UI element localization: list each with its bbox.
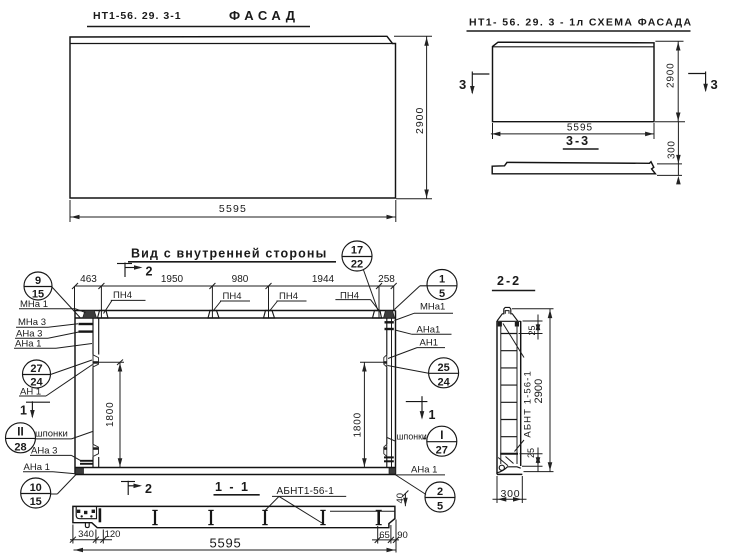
svg-text:1800: 1800 bbox=[352, 412, 363, 437]
svg-text:5595: 5595 bbox=[219, 203, 247, 215]
svg-text:15: 15 bbox=[30, 496, 42, 508]
svg-text:ПН4: ПН4 bbox=[223, 291, 242, 302]
svg-text:I: I bbox=[440, 430, 443, 442]
svg-text:АБНТ1-56-1: АБНТ1-56-1 bbox=[277, 486, 335, 497]
svg-text:5595: 5595 bbox=[209, 536, 241, 551]
svg-text:2: 2 bbox=[146, 265, 153, 279]
svg-text:АНа 3: АНа 3 bbox=[31, 446, 57, 457]
svg-text:3-3: 3-3 bbox=[566, 134, 590, 148]
svg-text:1: 1 bbox=[20, 404, 27, 418]
svg-text:65: 65 bbox=[379, 530, 390, 541]
svg-text:340: 340 bbox=[78, 529, 94, 540]
svg-text:258: 258 bbox=[378, 274, 395, 285]
svg-text:2900: 2900 bbox=[666, 63, 677, 88]
svg-text:463: 463 bbox=[80, 274, 97, 285]
svg-text:АНа 1: АНа 1 bbox=[411, 464, 437, 475]
svg-text:17: 17 bbox=[351, 245, 363, 257]
svg-text:27: 27 bbox=[436, 445, 448, 457]
svg-text:шпонки: шпонки bbox=[35, 429, 68, 440]
svg-text:II: II bbox=[17, 426, 23, 438]
svg-text:3: 3 bbox=[459, 77, 466, 92]
svg-text:МНа 3: МНа 3 bbox=[18, 317, 46, 328]
svg-text:2900: 2900 bbox=[533, 379, 545, 404]
svg-text:5595: 5595 bbox=[567, 123, 593, 134]
svg-text:2-2: 2-2 bbox=[497, 274, 521, 288]
svg-text:25: 25 bbox=[527, 325, 537, 335]
svg-text:АНа1: АНа1 bbox=[417, 324, 441, 335]
svg-text:АБНТ 1-56-1: АБНТ 1-56-1 bbox=[523, 370, 534, 437]
svg-text:10: 10 bbox=[30, 482, 42, 494]
svg-text:24: 24 bbox=[437, 376, 450, 388]
svg-text:Вид с внутренней стороны: Вид с внутренней стороны bbox=[131, 247, 327, 261]
svg-text:1950: 1950 bbox=[161, 274, 184, 285]
svg-text:АН1: АН1 bbox=[420, 338, 438, 349]
svg-text:ФАСАД: ФАСАД bbox=[229, 8, 300, 23]
svg-text:шпонки: шпонки bbox=[397, 432, 427, 442]
svg-text:1944: 1944 bbox=[312, 274, 335, 285]
svg-text:300: 300 bbox=[501, 488, 521, 500]
svg-text:2: 2 bbox=[145, 482, 152, 496]
svg-text:1800: 1800 bbox=[105, 402, 116, 427]
svg-text:25: 25 bbox=[526, 448, 536, 458]
svg-text:22: 22 bbox=[351, 259, 363, 271]
svg-text:5: 5 bbox=[437, 501, 443, 513]
svg-text:2: 2 bbox=[437, 486, 443, 498]
svg-text:27: 27 bbox=[30, 363, 42, 375]
svg-text:1: 1 bbox=[429, 408, 436, 422]
svg-text:28: 28 bbox=[14, 441, 26, 453]
svg-text:1 - 1: 1 - 1 bbox=[215, 480, 250, 494]
svg-text:НТ1-56. 29. 3-1: НТ1-56. 29. 3-1 bbox=[93, 10, 182, 22]
svg-text:НТ1- 56. 29. 3 - 1л СХЕМА ФАСА: НТ1- 56. 29. 3 - 1л СХЕМА ФАСАДА bbox=[469, 17, 693, 29]
svg-text:25: 25 bbox=[437, 362, 449, 374]
svg-text:ПН4: ПН4 bbox=[279, 291, 298, 302]
svg-text:2900: 2900 bbox=[414, 107, 426, 134]
svg-text:9: 9 bbox=[35, 275, 41, 287]
svg-text:ПН4: ПН4 bbox=[113, 290, 132, 301]
svg-text:1: 1 bbox=[439, 274, 445, 286]
svg-text:МНа1: МНа1 bbox=[420, 302, 445, 313]
svg-text:980: 980 bbox=[232, 274, 249, 285]
svg-text:90: 90 bbox=[397, 530, 408, 541]
svg-text:3: 3 bbox=[711, 77, 718, 92]
svg-text:5: 5 bbox=[439, 288, 445, 300]
svg-text:300: 300 bbox=[667, 141, 678, 160]
svg-text:120: 120 bbox=[105, 529, 121, 540]
svg-text:АНа 1: АНа 1 bbox=[15, 338, 41, 349]
